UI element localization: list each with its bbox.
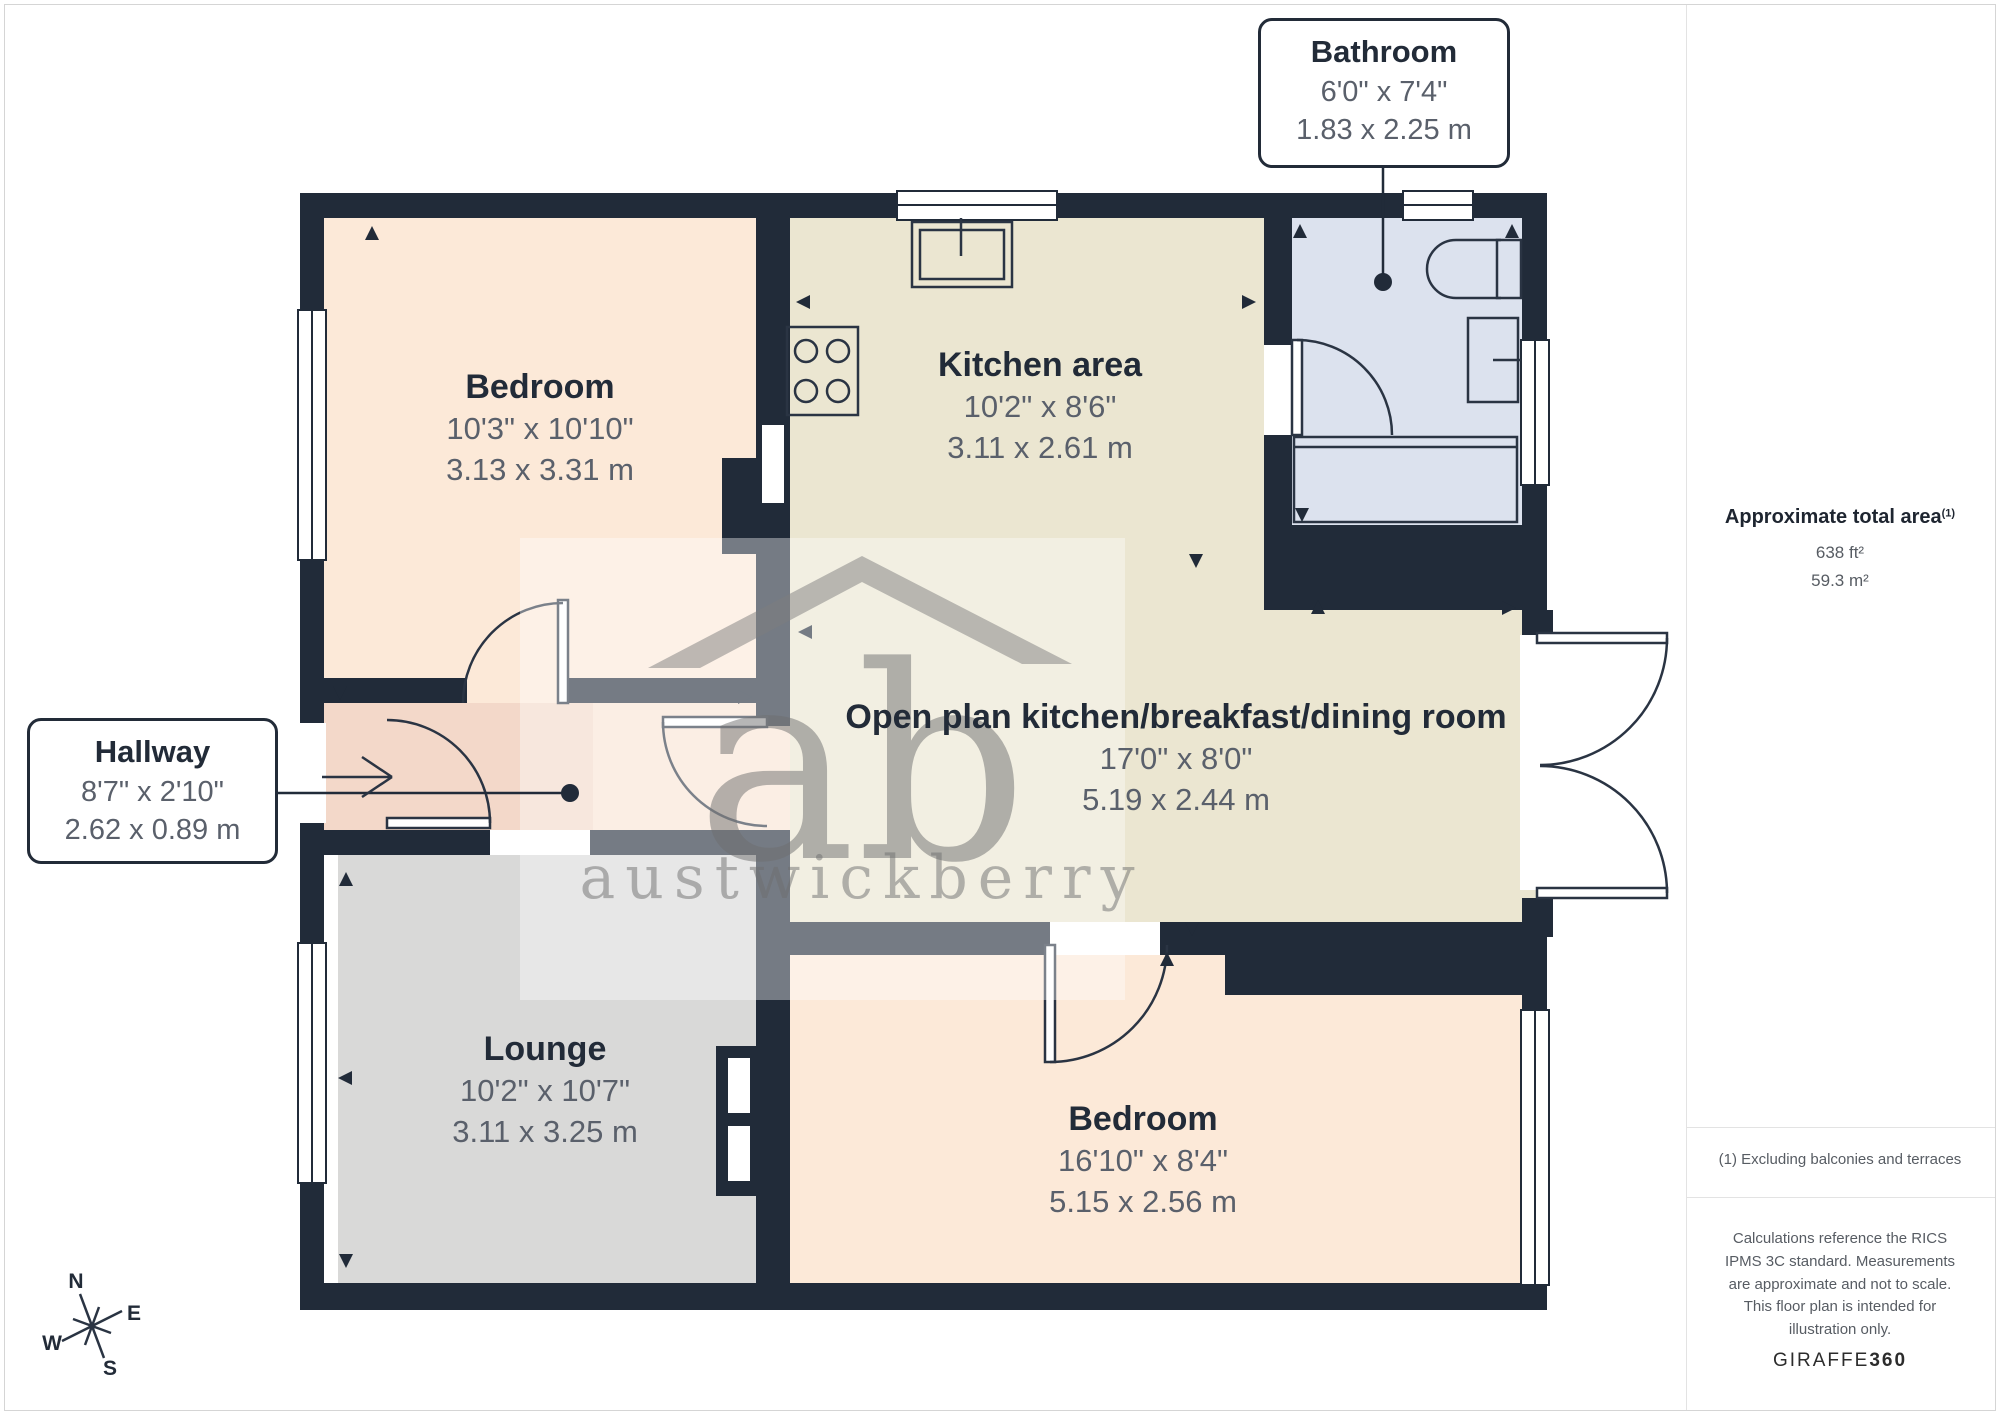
window [1403,191,1473,220]
total-area-block: Approximate total area(1) [1690,506,1990,529]
floorplan-svg: ab austwickberry N E W S [0,0,2000,1415]
footnote-divider-bottom [1687,1197,1995,1198]
bedroom2-floor-right [1225,995,1522,1283]
window [1521,1010,1549,1285]
leader-dot [1374,273,1392,291]
total-area-title: Approximate total area [1725,506,1942,528]
french-door-opening [1520,635,1555,890]
total-area-ft: 638 ft² [1690,543,1990,563]
window [1521,340,1549,485]
callout-dim-metric: 2.62 x 0.89 m [30,811,275,850]
front-door-opening [298,723,326,823]
compass-e-label: E [127,1302,141,1325]
hallway-callout: Hallway 8'7" x 2'10" 2.62 x 0.89 m [27,718,278,864]
compass-n-label: N [68,1270,83,1293]
watermark: ab austwickberry [520,538,1145,1000]
footnote: (1) Excluding balconies and terraces [1690,1151,1990,1168]
watermark-name: austwickberry [580,843,1145,913]
disclaimer: Calculations reference the RICS IPMS 3C … [1718,1228,1962,1342]
window [298,943,326,1183]
leader-dot [561,784,579,802]
sidebar-divider [1686,5,1687,1410]
brand-logo: GIRAFFE360 [1690,1350,1990,1372]
total-area-m: 59.3 m² [1690,571,1990,591]
compass-s-label: S [103,1357,117,1380]
callout-dim-imperial: 8'7" x 2'10" [30,773,275,812]
window [298,310,326,560]
french-doors [1537,633,1667,898]
callout-title: Bathroom [1261,31,1507,73]
bathroom-callout: Bathroom 6'0" x 7'4" 1.83 x 2.25 m [1258,18,1510,168]
floorplan-page: ab austwickberry N E W S Be [0,0,2000,1415]
brand-name: GIRAFFE [1773,1350,1869,1371]
compass-w-label: W [42,1332,62,1355]
footnote-divider-top [1687,1127,1995,1128]
total-area-note-ref: (1) [1942,508,1955,520]
callout-title: Hallway [30,731,275,773]
callout-dim-imperial: 6'0" x 7'4" [1261,73,1507,112]
compass-rose: N E W S [42,1270,141,1380]
bathroom-floor [1292,218,1523,525]
callout-dim-metric: 1.83 x 2.25 m [1261,111,1507,150]
brand-suffix: 360 [1869,1350,1907,1371]
bedroom2-floor [790,955,1225,1283]
window [897,191,1057,220]
